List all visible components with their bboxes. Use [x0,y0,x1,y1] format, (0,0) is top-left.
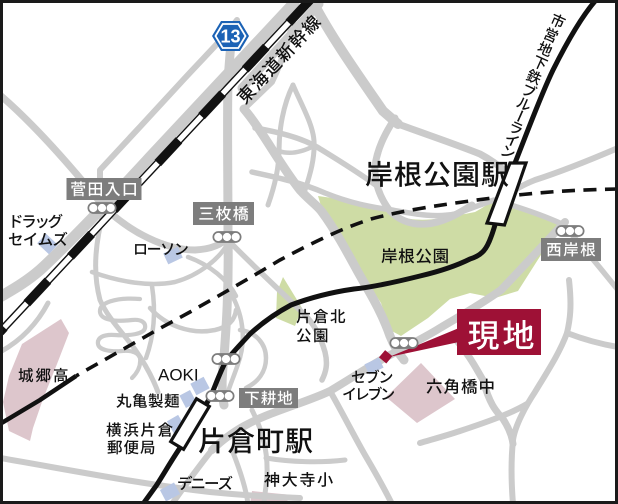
svg-text:AOKI: AOKI [158,366,199,385]
svg-text:13: 13 [220,27,240,47]
